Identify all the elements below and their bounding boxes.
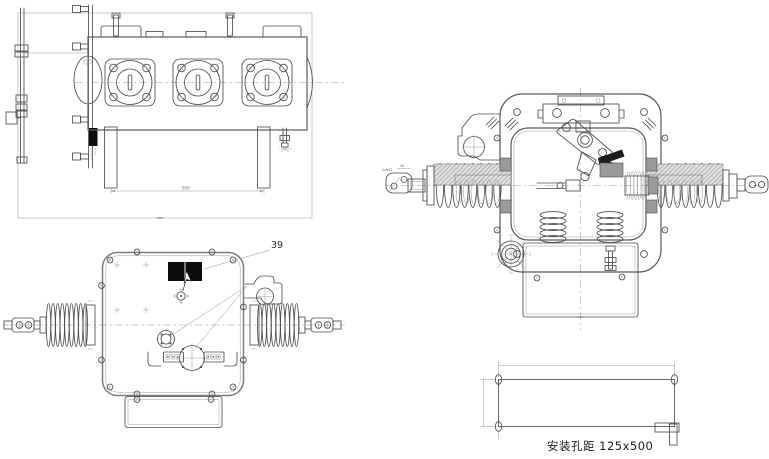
handle-right [263,26,301,37]
top-view-envelope [18,13,312,218]
side-linkage-strip [6,8,88,163]
tank-body-top [74,37,345,130]
shaft-seal-circle [156,329,177,350]
mounting-layout-view: 安装孔距 125x500 [480,362,679,453]
mounting-note-text: 安装孔距 125x500 [547,439,653,453]
mounting-dimension-lines [480,362,675,427]
corner-stripe-right [643,118,656,130]
mounting-rectangle [499,380,675,427]
interlock-bracket [245,276,282,305]
front-view: 39 [3,240,345,428]
terminal-holes-dim: 2xΦ12 [382,168,392,172]
gauge-window [89,128,98,146]
top-view-dim-text: 500 [182,186,190,191]
top-view-dimension: 500 [111,186,264,194]
linkage-handle [6,112,17,124]
drawing-svg: 500 39 [0,0,769,459]
section-view: 2xΦ12 46 [382,88,768,330]
lifting-handles [101,13,301,39]
punch-marks [114,262,149,313]
handle-left [101,26,141,37]
support-leg-left [105,127,118,188]
drain-bolt-detail [279,128,291,152]
side-bracket [458,114,500,160]
terminal-width-dim: 46 [400,164,404,168]
drive-shaft-circle [176,343,208,373]
leader-line [172,286,247,335]
technical-drawing-sheet: 500 39 [0,0,769,459]
top-lifting-bracket [538,96,624,132]
hook-right [224,352,237,366]
opening-spring-left [540,212,566,243]
tank-side-plate [73,5,98,168]
support-leg-right [258,127,271,188]
hook-left [148,352,161,366]
shaft-target-upper [173,288,190,305]
corner-stripe-left [505,118,518,130]
opening-spring-right [597,212,623,243]
bushing-left [4,301,95,349]
part-number-label: 39 [271,240,283,251]
mechanism-box-front [125,397,222,428]
terminal-block-right [204,352,224,362]
inner-tank [511,128,646,240]
top-plan-view: 500 [6,5,345,218]
shaft-bushing [492,235,530,273]
leader-line [193,286,247,351]
